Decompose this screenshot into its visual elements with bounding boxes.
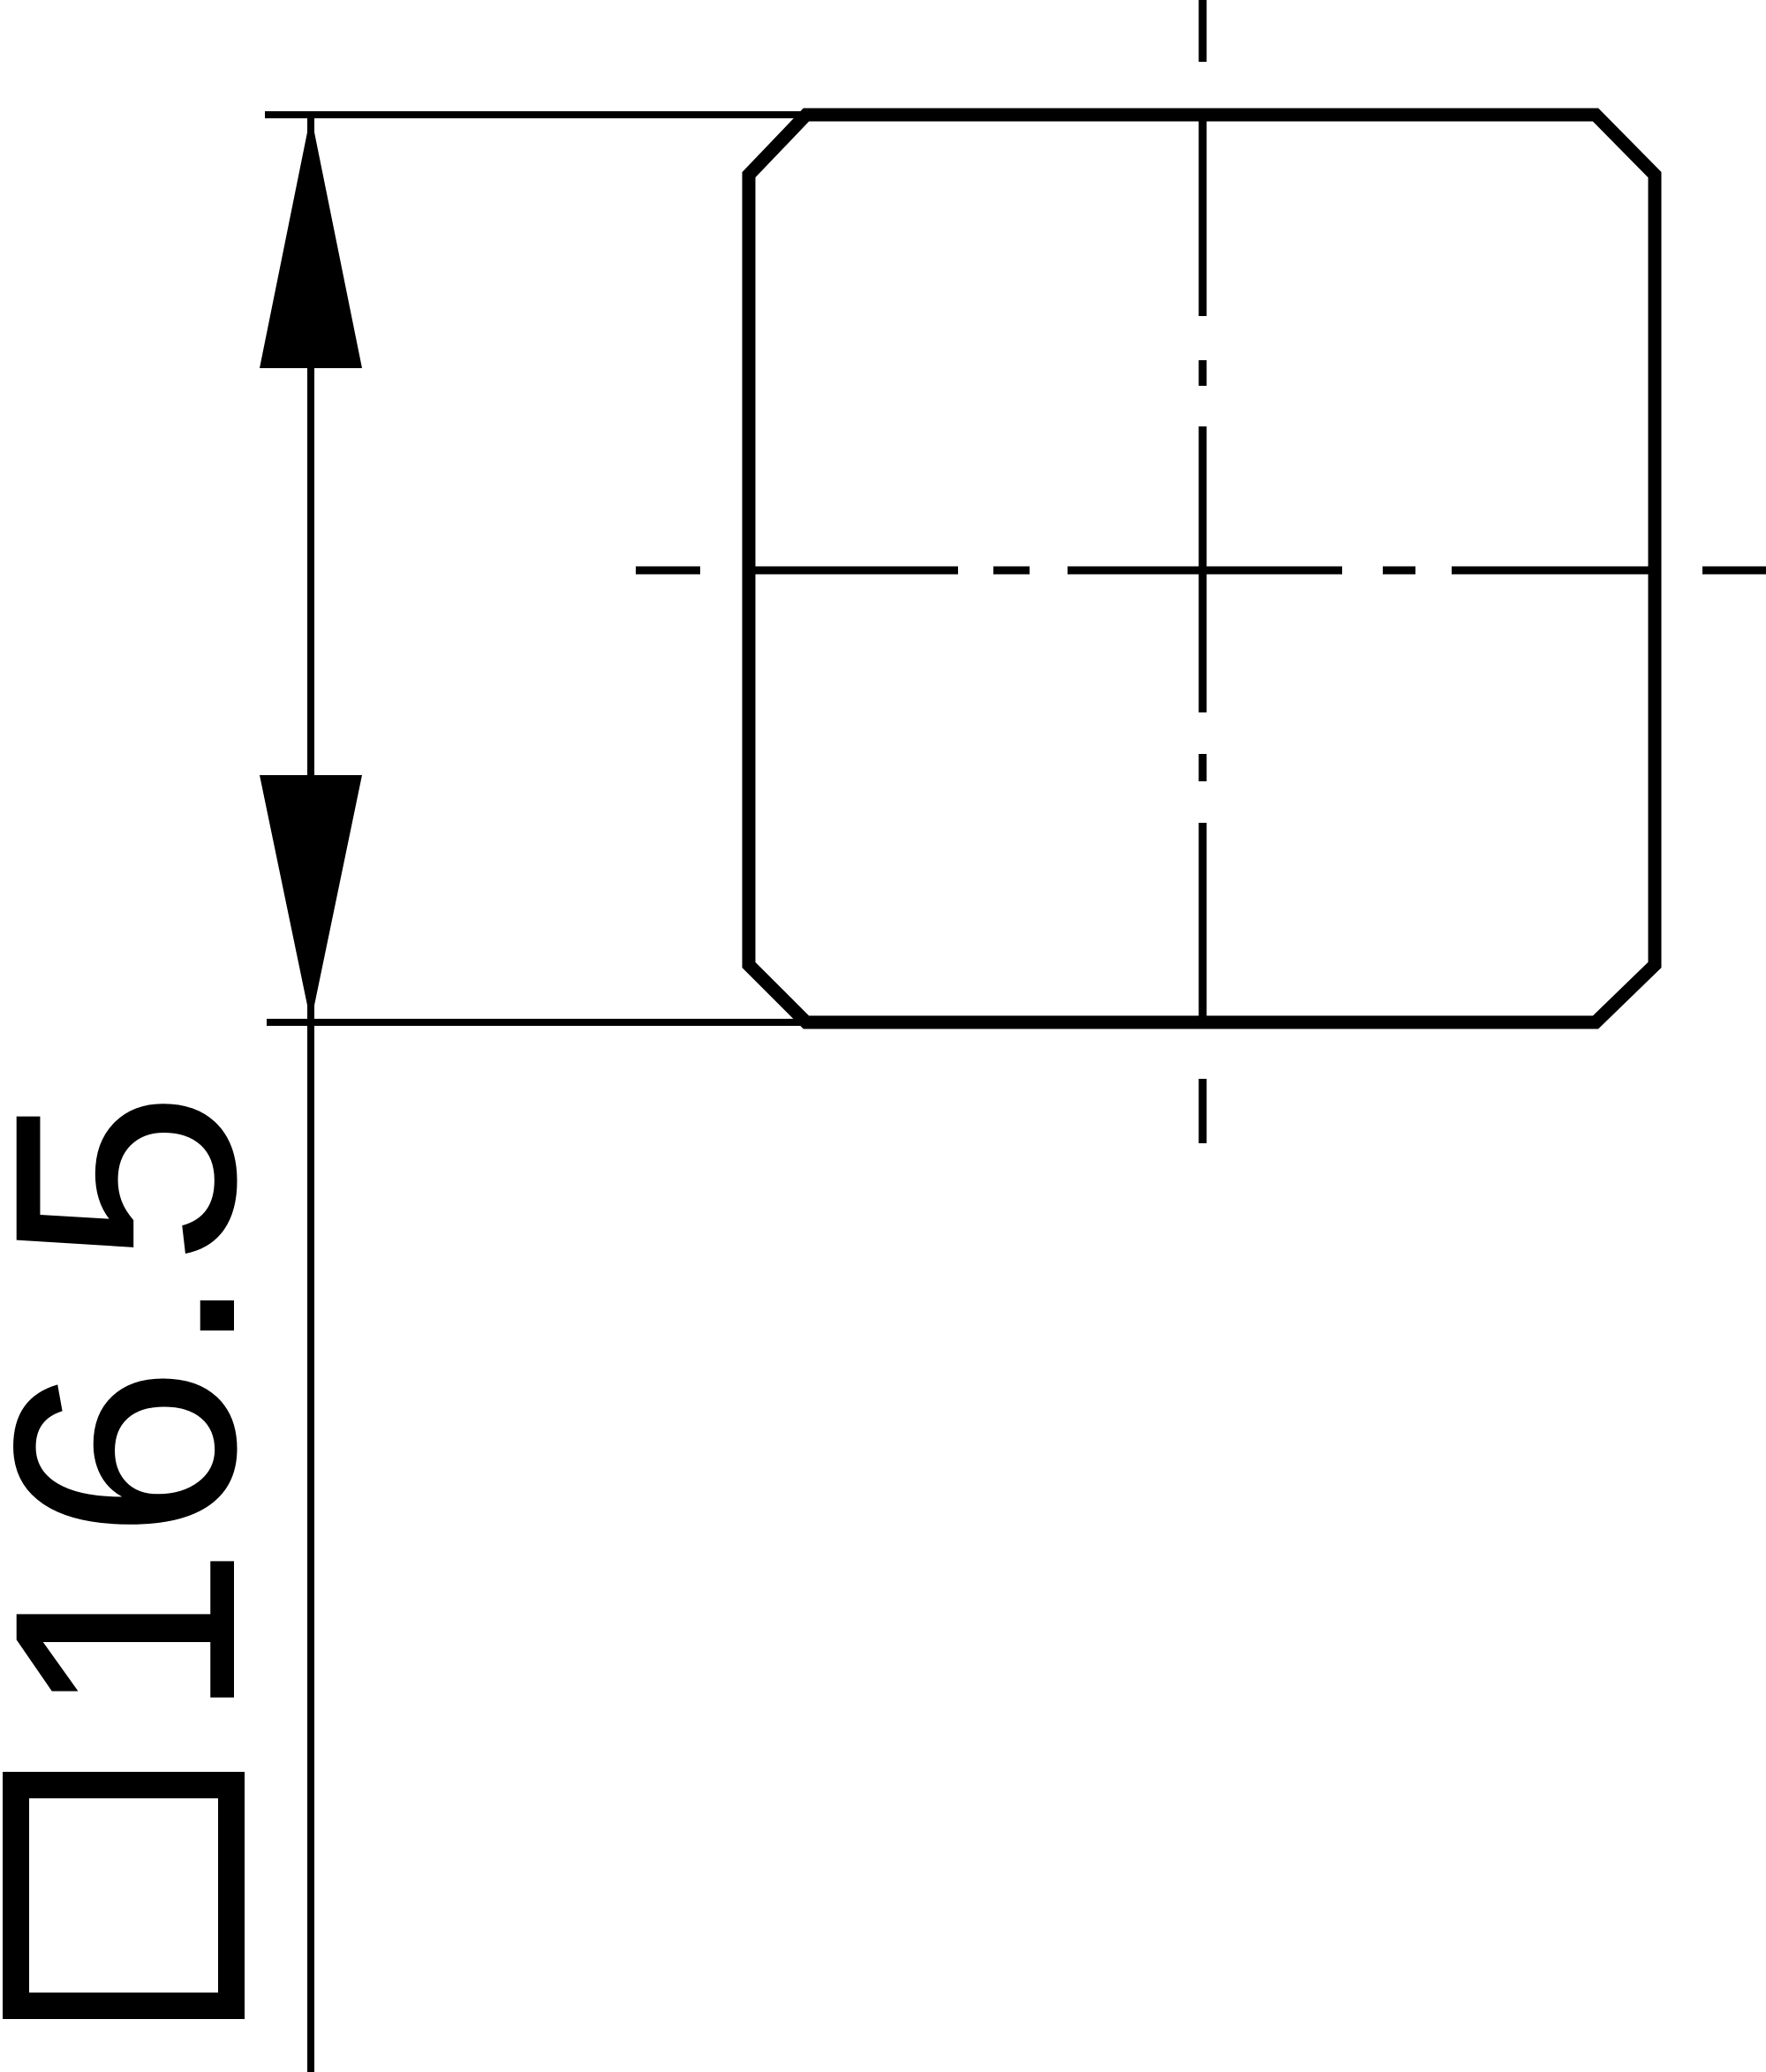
technical-drawing-canvas: 16.5 <box>0 0 1766 2072</box>
square-section-symbol-icon <box>16 1785 231 2006</box>
arrowhead-down-icon <box>260 775 362 1022</box>
dimension-value-label: 16.5 <box>0 1085 301 1722</box>
arrowhead-up-icon <box>260 115 362 368</box>
dimension-annotation: 16.5 <box>0 115 806 2072</box>
technical-drawing: 16.5 <box>0 0 1766 2072</box>
